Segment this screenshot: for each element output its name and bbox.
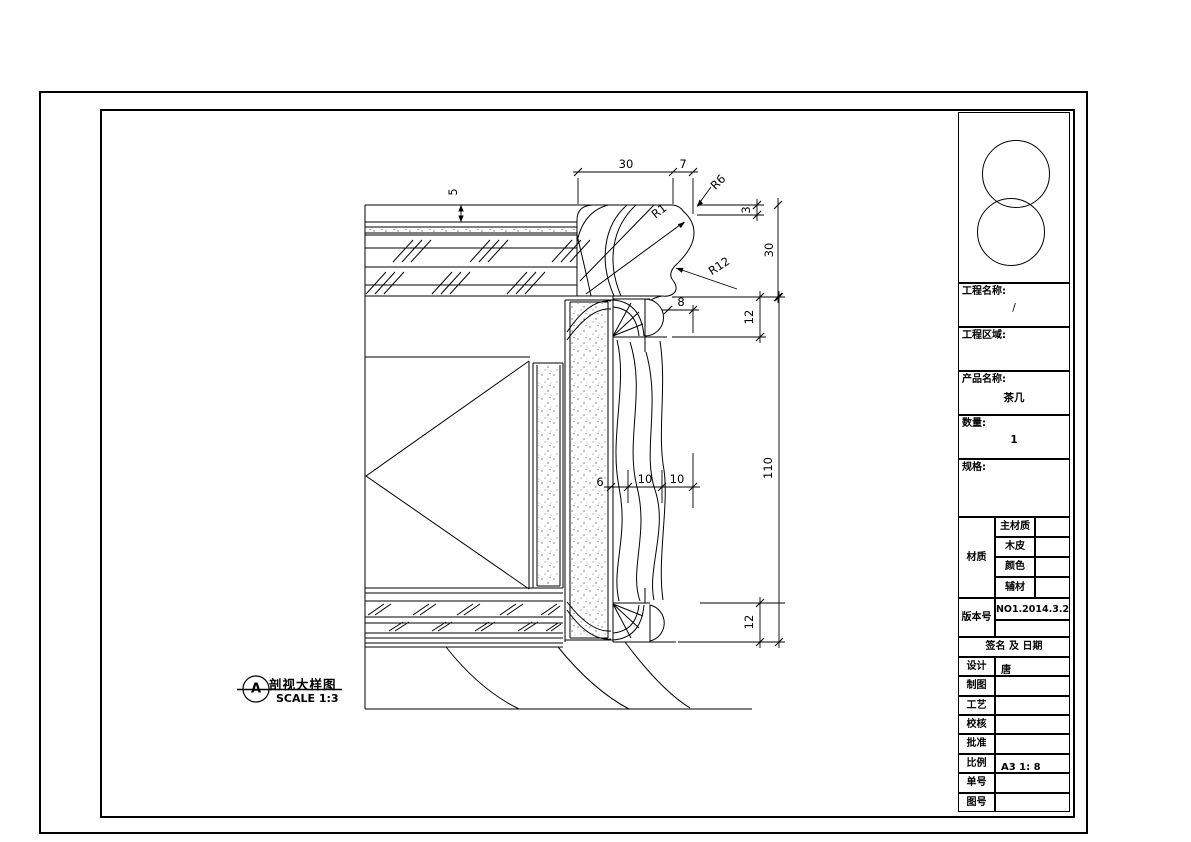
moulding-carve-arcs [577, 205, 636, 296]
check-label: 校核 [967, 719, 987, 731]
material-row-value [1035, 577, 1070, 598]
field-product-name: 产品名称: 茶几 [958, 371, 1070, 415]
logo-box [958, 112, 1070, 283]
mid-bottom-lines [365, 588, 563, 593]
dim-lines [461, 172, 779, 648]
material-row-value [1035, 537, 1070, 557]
dim-carve-b: 10 [638, 472, 653, 486]
moulding-diagonals [580, 205, 684, 294]
sign-row-value: A3 1: 8 [995, 754, 1070, 773]
version-label: 版本号 [962, 612, 992, 624]
dim-carve-c: 10 [670, 472, 685, 486]
material-row-label: 颜色 [995, 557, 1035, 577]
drawingno-label: 图号 [967, 797, 987, 809]
quantity-label: 数量: [959, 416, 1069, 430]
quantity-value: 1 [959, 434, 1069, 446]
dim-carve-a: 6 [596, 475, 603, 489]
version-value-cell: NO1.2014.3.2 [995, 598, 1070, 620]
dim-edge-height: 30 [762, 243, 776, 258]
callout-letter: A [251, 682, 261, 697]
design-value: 唐 [996, 664, 1011, 676]
sign-row-label: 校核 [958, 715, 995, 734]
sign-row-value [995, 715, 1070, 734]
sign-row-label: 比例 [958, 754, 995, 773]
sign-row-value [995, 676, 1070, 696]
bead-lines [613, 296, 667, 337]
order-label: 单号 [967, 777, 987, 789]
approve-label: 批准 [967, 738, 987, 750]
carved-board [616, 337, 665, 603]
material-label: 材质 [967, 552, 987, 564]
dim-bead-bottom: 12 [742, 615, 756, 630]
version-value2-cell [995, 620, 1070, 637]
material-color-label: 颜色 [1005, 561, 1025, 573]
dim-bead-top: 12 [742, 310, 756, 325]
sign-row-label: 制图 [958, 676, 995, 696]
top-bead [613, 296, 667, 337]
sign-row-label: 工艺 [958, 696, 995, 715]
dim-edge-step: 3 [739, 206, 753, 213]
edge-moulding [577, 205, 694, 296]
sign-row-value [995, 793, 1070, 812]
scale-label: 比例 [967, 758, 987, 770]
core-panel [565, 296, 613, 642]
material-row-value [1035, 557, 1070, 577]
title-block: 工程名称: / 工程区域: 产品名称: 茶几 数量: 1 规格: 材质 主材质 … [958, 112, 1070, 812]
material-row-label: 主材质 [995, 517, 1035, 537]
material-row-label: 木皮 [995, 537, 1035, 557]
material-label-cell: 材质 [958, 517, 995, 598]
witness-lines [578, 178, 785, 642]
dimension-lines [458, 168, 785, 648]
r1-arrow [678, 222, 685, 228]
project-area-label: 工程区域: [959, 328, 1069, 342]
sign-row-label: 图号 [958, 793, 995, 812]
version-label-cell: 版本号 [958, 598, 995, 637]
bottom-bead [613, 603, 676, 642]
product-name-label: 产品名称: [959, 372, 1069, 386]
sign-row-value [995, 734, 1070, 754]
material-main-label: 主材质 [1000, 521, 1030, 533]
dim-top-width-1: 30 [619, 157, 634, 171]
field-project-name: 工程名称: / [958, 283, 1070, 327]
triangle [366, 361, 529, 589]
project-name-value: / [959, 302, 1069, 314]
craft-label: 工艺 [967, 700, 987, 712]
dim-top-width-2: 7 [679, 157, 686, 171]
dim-top-thickness: 5 [446, 188, 460, 195]
leader-lines [676, 187, 737, 289]
panel-stipple [571, 303, 607, 637]
draft-label: 制图 [967, 680, 987, 692]
sign-header: 签名 及 日期 [986, 641, 1043, 653]
carve-scurves [616, 340, 665, 601]
inner-strip [533, 363, 563, 588]
sign-row-label: 设计 [958, 657, 995, 676]
dim-board-height: 110 [761, 457, 775, 479]
material-row-value [1035, 517, 1070, 537]
version-value: NO1.2014.3.2 [996, 604, 1069, 615]
rail-lines [365, 601, 563, 647]
callout-title: 剖视大样图 [269, 674, 337, 693]
field-project-area: 工程区域: [958, 327, 1070, 371]
ogee-profile [662, 205, 694, 296]
project-name-label: 工程名称: [959, 284, 1069, 298]
material-row-label: 辅材 [995, 577, 1035, 598]
sign-header-cell: 签名 及 日期 [958, 637, 1070, 657]
field-quantity: 数量: 1 [958, 415, 1070, 459]
thk-arrow-down [458, 216, 463, 223]
r6-arrow [697, 200, 703, 208]
product-name-value: 茶几 [959, 390, 1069, 405]
material-veneer-label: 木皮 [1005, 541, 1025, 553]
cad-sheet: 30 7 R6 R1 R12 3 30 12 110 12 8 6 10 10 … [0, 0, 1191, 842]
material-aux-label: 辅材 [1005, 582, 1025, 594]
edge-block-left [577, 205, 592, 296]
bead-halfround [645, 299, 664, 336]
leg-arcs [446, 642, 690, 709]
scale-value: A3 1: 8 [996, 761, 1041, 773]
field-spec: 规格: [958, 459, 1070, 517]
design-label: 设计 [967, 661, 987, 673]
sign-row-value [995, 773, 1070, 793]
dim-nose: 8 [677, 295, 684, 309]
tabletop-layer-lines [365, 205, 673, 296]
sign-row-value [995, 696, 1070, 715]
spec-label: 规格: [959, 460, 1069, 474]
r12-arrow [676, 268, 684, 273]
bottom-rails [365, 601, 563, 647]
logo-circle-2 [977, 198, 1045, 266]
base-curves [365, 642, 752, 709]
strip-stipple [538, 366, 559, 585]
sign-row-value: 唐 [995, 657, 1070, 676]
bead-halfround-b [650, 605, 664, 641]
callout-scale: SCALE 1:3 [276, 692, 339, 705]
thk-arrow-up [458, 205, 463, 212]
sign-row-label: 单号 [958, 773, 995, 793]
sign-row-label: 批准 [958, 734, 995, 754]
bead-torus [613, 300, 644, 336]
veneer-stipple [366, 228, 576, 233]
